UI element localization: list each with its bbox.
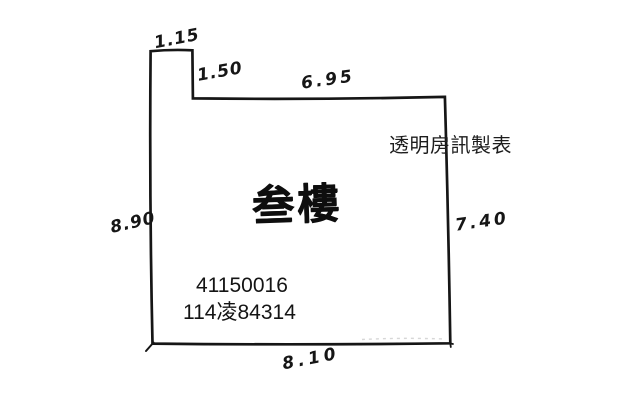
floor-plan-sketch: 1.15 1.50 6.95 8.90 7.40 8.10 叁樓 透明房訊製表 … xyxy=(0,0,618,413)
floor-name-label: 叁樓 xyxy=(251,180,343,229)
credit-text: 透明房訊製表 xyxy=(389,129,512,158)
id-number-line2: 114凌84314 xyxy=(183,296,296,326)
pen-overshoot-bottom-left xyxy=(146,343,154,352)
id-number-line1: 41150016 xyxy=(196,274,288,298)
pen-overshoot-bottom-right xyxy=(450,343,453,347)
pencil-smudge xyxy=(362,338,446,339)
